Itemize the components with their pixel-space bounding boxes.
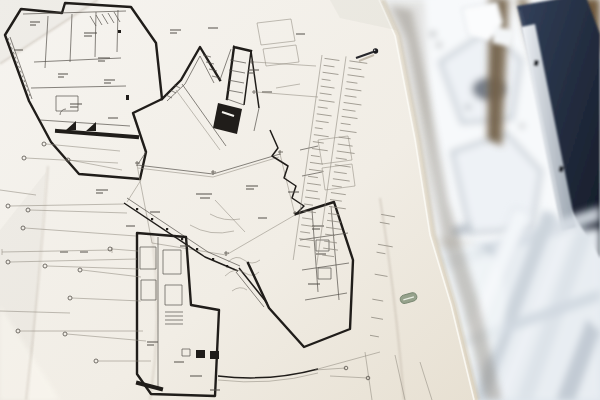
pin-glint bbox=[374, 49, 376, 51]
pin-head bbox=[373, 48, 378, 53]
photo-scene: Photograph of a black-and-white architec… bbox=[0, 0, 600, 400]
photo-canvas bbox=[0, 0, 600, 400]
